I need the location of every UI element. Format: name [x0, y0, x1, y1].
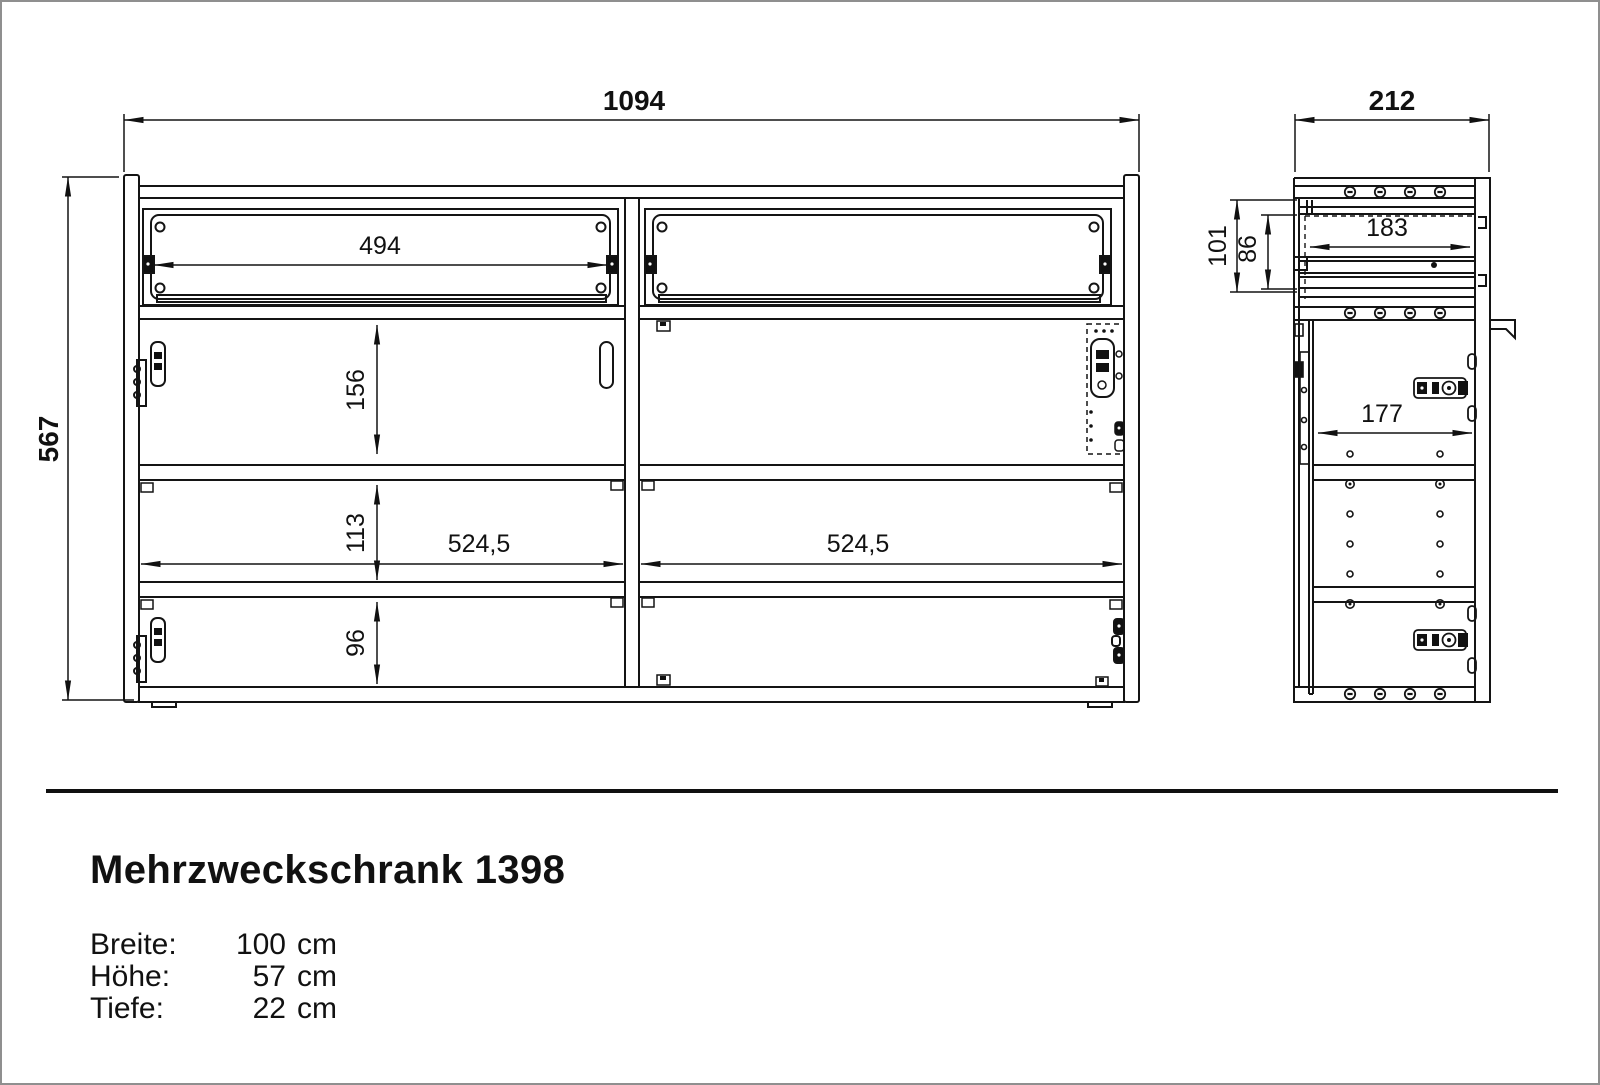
dim-front-width [124, 114, 1139, 172]
door-handle [600, 342, 613, 388]
center-divider [625, 198, 639, 687]
flap-width-label: 494 [359, 232, 401, 260]
spec-row-hoehe: Höhe: 57 cm [90, 961, 337, 993]
side-hinge-upper [1414, 354, 1476, 421]
flap-total-depth-label: 101 [1204, 225, 1232, 267]
spec-unit: cm [297, 961, 337, 993]
spec-label: Breite: [90, 929, 232, 961]
left-section-label: 524,5 [448, 530, 511, 558]
spec-value: 57 [232, 961, 286, 993]
front-lock-panel [1087, 324, 1124, 454]
separator-line [46, 789, 1558, 793]
spec-label: Tiefe: [90, 993, 232, 1025]
side-screws [1345, 187, 1445, 699]
front-cabinet-body [124, 175, 1139, 707]
spec-unit: cm [297, 929, 337, 961]
wall-mount-hook [1490, 320, 1515, 338]
spec-value: 100 [232, 929, 286, 961]
dimension-labels: 1094 567 494 156 113 96 524,5 524,5 212 … [33, 85, 1415, 657]
spec-table: Breite: 100 cm Höhe: 57 cm Tiefe: 22 cm [90, 929, 337, 1025]
side-view [1294, 178, 1515, 702]
middle-compartment-label: 113 [342, 513, 370, 553]
dim-flap-inner-depth [1261, 215, 1297, 289]
spec-value: 22 [232, 993, 286, 1025]
spec-unit: cm [297, 993, 337, 1025]
front-width-label: 1094 [603, 85, 666, 116]
side-hinge-bracket-left [1294, 324, 1309, 464]
dim-side-depth [1295, 114, 1489, 172]
front-height-label: 567 [33, 416, 64, 463]
side-hinge-lower [1414, 606, 1476, 673]
spec-row-tiefe: Tiefe: 22 cm [90, 993, 337, 1025]
spec-row-breite: Breite: 100 cm [90, 929, 337, 961]
technical-drawing: 1094 567 494 156 113 96 524,5 524,5 212 … [2, 2, 1600, 792]
interior-depth-label: 177 [1361, 400, 1403, 428]
side-shelves [1313, 465, 1475, 602]
front-hinge-right [1112, 619, 1124, 663]
front-view [124, 175, 1139, 707]
side-hole-rows [1346, 451, 1444, 608]
flap-inner-depth-label: 86 [1234, 235, 1262, 263]
flap-opening-depth-label: 183 [1366, 214, 1408, 242]
bottom-compartment-label: 96 [342, 629, 370, 657]
spec-label: Höhe: [90, 961, 232, 993]
dimension-lines [62, 114, 1489, 700]
drawing-sheet: 1094 567 494 156 113 96 524,5 524,5 212 … [0, 0, 1600, 1085]
top-compartment-label: 156 [342, 369, 370, 411]
side-depth-label: 212 [1369, 85, 1416, 116]
front-flap-right [645, 209, 1111, 305]
right-section-label: 524,5 [827, 530, 890, 558]
product-title: Mehrzweckschrank 1398 [90, 848, 565, 893]
